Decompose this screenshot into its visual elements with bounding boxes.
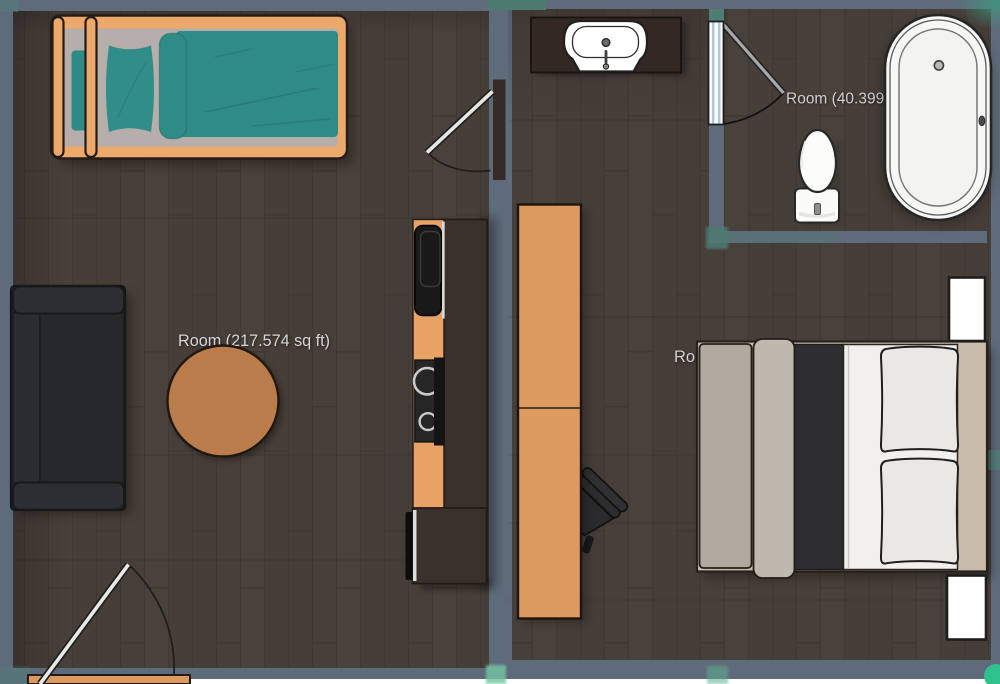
svg-text:Room (217.574 sq ft): Room (217.574 sq ft) xyxy=(178,332,330,350)
